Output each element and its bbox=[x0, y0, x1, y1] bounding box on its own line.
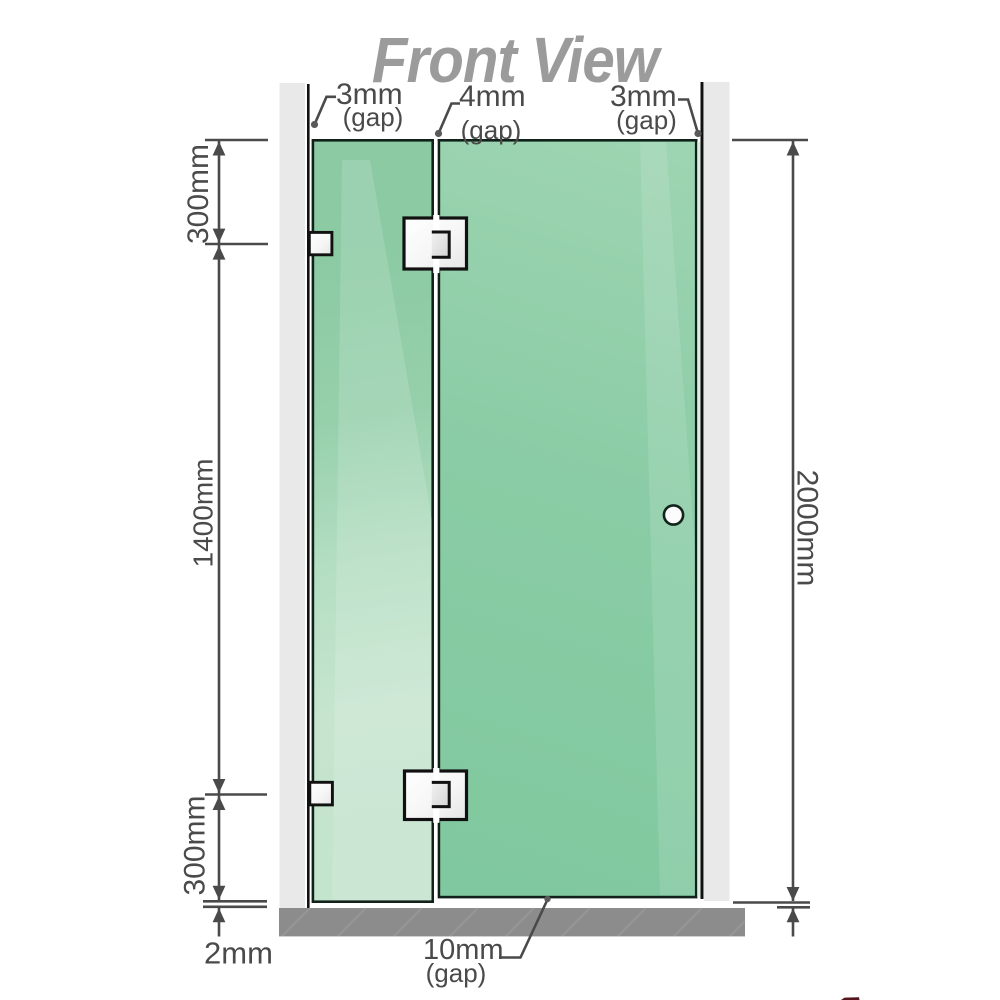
svg-text:2mm: 2mm bbox=[204, 936, 273, 971]
svg-text:300mm: 300mm bbox=[179, 795, 212, 895]
svg-text:(gap): (gap) bbox=[343, 102, 404, 132]
svg-text:(gap): (gap) bbox=[616, 105, 677, 135]
svg-text:1400mm: 1400mm bbox=[188, 459, 219, 568]
svg-text:(gap): (gap) bbox=[461, 115, 522, 145]
svg-text:300mm: 300mm bbox=[182, 144, 215, 244]
svg-text:(gap): (gap) bbox=[426, 958, 487, 988]
svg-text:2000mm: 2000mm bbox=[791, 470, 824, 587]
svg-text:4mm: 4mm bbox=[459, 80, 526, 113]
